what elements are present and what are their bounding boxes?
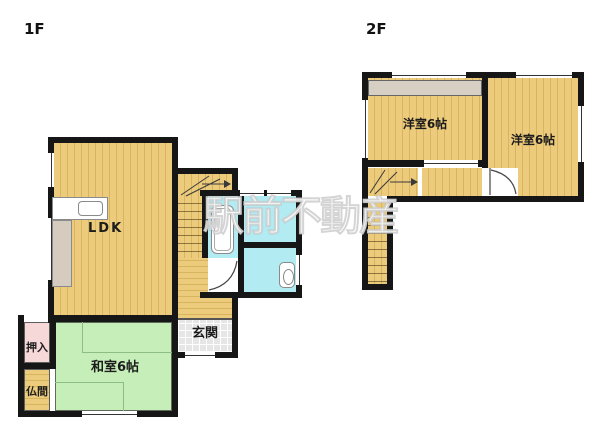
window [82,411,137,417]
window [296,255,302,285]
window [516,72,572,78]
wall-segment [482,78,488,168]
oshiire-label: 押入 [23,339,51,355]
hall-floor-2f [422,168,482,196]
tatami-line [82,352,172,353]
kitchen-sink [78,201,103,216]
wall-segment [200,292,302,298]
wall-segment [172,137,178,417]
floor2-label: 2F [366,20,387,38]
genkan-label: 玄関 [180,322,230,341]
toilet [279,262,295,288]
wall-segment [238,242,302,248]
window [578,106,584,162]
stair-landing-edge [418,168,422,196]
watermark-text: 駅前不動産 [203,194,398,239]
entrance-door [185,352,215,358]
closet-2f [368,80,482,96]
wall-segment [387,196,584,202]
wall-segment [18,363,56,369]
tatami-line [55,382,123,383]
kitchen-counter-side [52,220,72,287]
toilet-bowl [283,269,294,285]
window [392,72,466,78]
window [48,153,54,187]
wall-segment [172,168,238,174]
tatami-line [82,322,83,352]
wall-segment [362,160,424,167]
bathroom-door-swing-area [208,258,238,292]
stair-run-1f [178,196,202,258]
floor1-label: 1F [24,20,45,38]
butsuma-label: 仏間 [23,383,51,399]
wall-segment [48,137,178,143]
window [362,100,368,158]
ldk-label: LDK [88,221,123,236]
floor-plan: 1F LDK [0,0,600,442]
door-swing-area-2f [488,168,518,196]
genkan-step-line [178,318,232,320]
washitsu-label: 和室6帖 [82,356,148,375]
sliding-door-opening [424,160,478,167]
wall-segment [232,298,238,358]
wall-segment [48,315,178,322]
west-room-right-label: 洋室6帖 [498,131,568,148]
tatami-line [123,382,124,411]
wall-segment [362,284,393,290]
west-room-left-label: 洋室6帖 [390,115,460,132]
wall-segment [478,160,488,167]
